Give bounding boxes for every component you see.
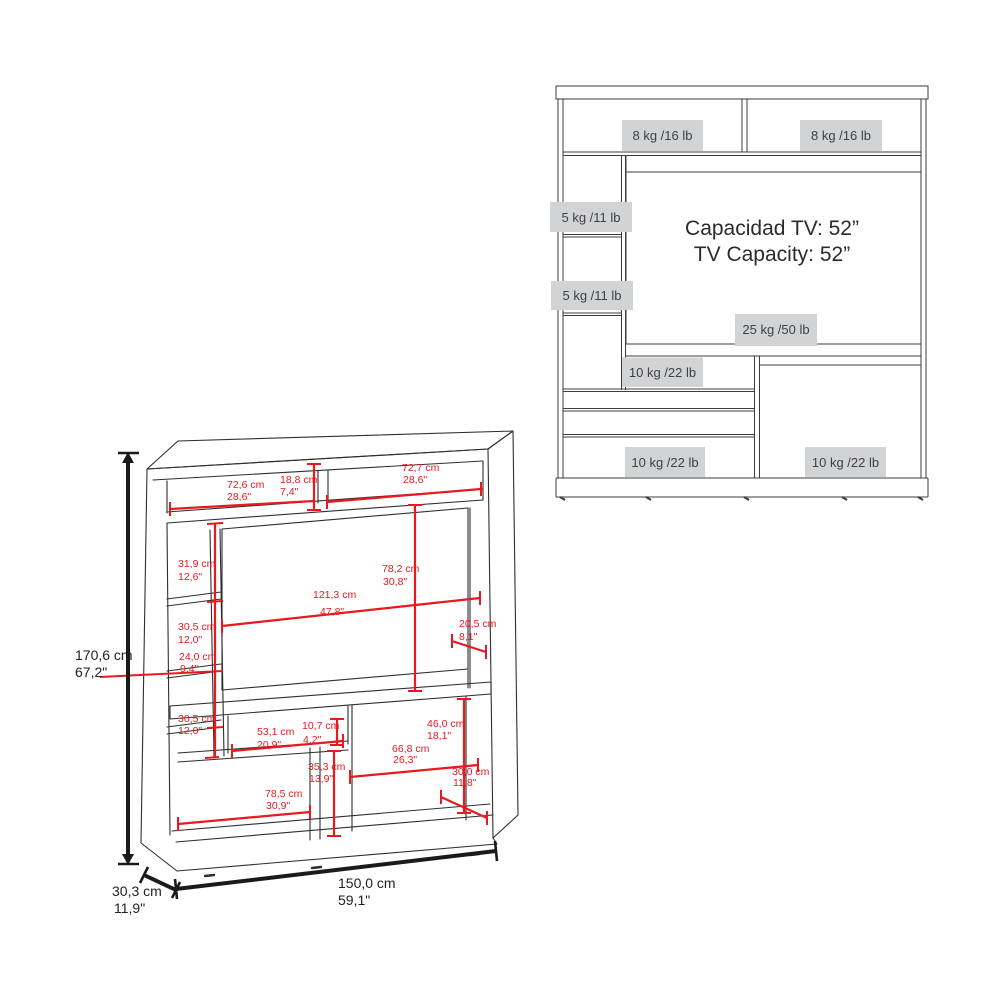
dim-niche-depth-in: 8,1" [459,631,478,643]
overall-width-in: 59,1" [338,892,370,908]
overall-height-in: 67,2" [75,664,107,680]
red-dimension-lines [100,464,487,836]
dim-cubby4-in: 12,0" [178,725,202,737]
dim-cubby2-in: 12,0" [178,634,202,646]
dim-bl-comp-height-in: 13,9" [309,773,333,785]
dim-top-left-width-in: 28,6" [227,491,251,503]
overall-height-cm: 170,6 cm [75,647,133,663]
dim-tv-height-cm: 78,2 cm [382,563,420,575]
red-dimension-labels: 72,6 cm 28,6" 18,8 cm 7,4" 72,7 cm 28,6"… [178,462,497,812]
capacity-side-1-label: 5 kg /11 lb [561,210,620,225]
capacity-bottom-left-label: 10 kg /22 lb [631,455,698,470]
dim-tv-width-in: 47,8" [320,606,344,618]
dim-br-depth-in: 11,8" [453,777,477,789]
dim-cubby3-cm: 24,0 cm [179,651,217,663]
overall-width-cm: 150,0 cm [338,875,396,891]
dim-slot-width-cm: 53,1 cm [257,726,295,738]
tv-capacity-line2: TV Capacity: 52” [694,243,850,266]
dim-bl-comp-height-cm: 35,3 cm [308,761,346,773]
tv-capacity-line1: Capacidad TV: 52” [685,217,859,240]
dim-top-left-width-cm: 72,6 cm [227,479,265,491]
tv-capacity-text: Capacidad TV: 52” TV Capacity: 52” [685,217,859,266]
dim-niche-depth-cm: 20,5 cm [459,618,497,630]
dim-hutch-height-cm: 18,8 cm [280,474,318,486]
dim-top-right-width-cm: 72,7 cm [402,462,440,474]
overall-depth-in: 11,9" [114,900,145,916]
capacity-middle-label: 10 kg /22 lb [629,365,696,380]
capacity-diagram: 8 kg /16 lb 8 kg /16 lb 5 kg /11 lb 5 kg… [550,86,928,500]
dim-tv-width-cm: 121,3 cm [313,589,356,601]
dim-top-right-width-in: 28,6" [403,474,427,486]
dim-slot-width-in: 20,9" [257,739,281,751]
capacity-bottom-right-label: 10 kg /22 lb [812,455,879,470]
dim-slot-height-cm: 10,7 cm [302,720,340,732]
dim-bl-comp-width-in: 30,9" [266,800,290,812]
dimension-diagram: 72,6 cm 28,6" 18,8 cm 7,4" 72,7 cm 28,6"… [75,431,518,916]
overall-depth-cm: 30,3 cm [112,883,162,899]
capacity-labels: 8 kg /16 lb 8 kg /16 lb 5 kg /11 lb 5 kg… [550,120,886,477]
capacity-top-left-label: 8 kg /16 lb [633,128,693,143]
dim-hutch-height-in: 7,4" [280,486,299,498]
dim-bl-comp-width-cm: 78,5 cm [265,788,303,800]
dim-cubby1-cm: 31,9 cm [178,558,216,570]
dim-cubby1-in: 12,6" [178,571,202,583]
dim-br-comp-height-cm: 46,0 cm [427,718,465,730]
capacity-top-right-label: 8 kg /16 lb [811,128,871,143]
dim-slot-height-in: 4,2" [303,734,322,746]
dim-br-comp-width-in: 26,3" [393,754,417,766]
furniture-dimension-sheet: 72,6 cm 28,6" 18,8 cm 7,4" 72,7 cm 28,6"… [0,0,1000,1000]
dim-cubby3-in: 9,4" [180,663,199,675]
dim-cubby2-cm: 30,5 cm [178,621,216,633]
dim-cubby4-cm: 30,5 cm [178,713,216,725]
dim-tv-height-in: 30,8" [383,576,407,588]
capacity-main-shelf-label: 25 kg /50 lb [742,322,809,337]
diagram-canvas: 72,6 cm 28,6" 18,8 cm 7,4" 72,7 cm 28,6"… [0,0,1000,1000]
capacity-side-2-label: 5 kg /11 lb [562,288,621,303]
dim-br-comp-height-in: 18,1" [427,730,451,742]
